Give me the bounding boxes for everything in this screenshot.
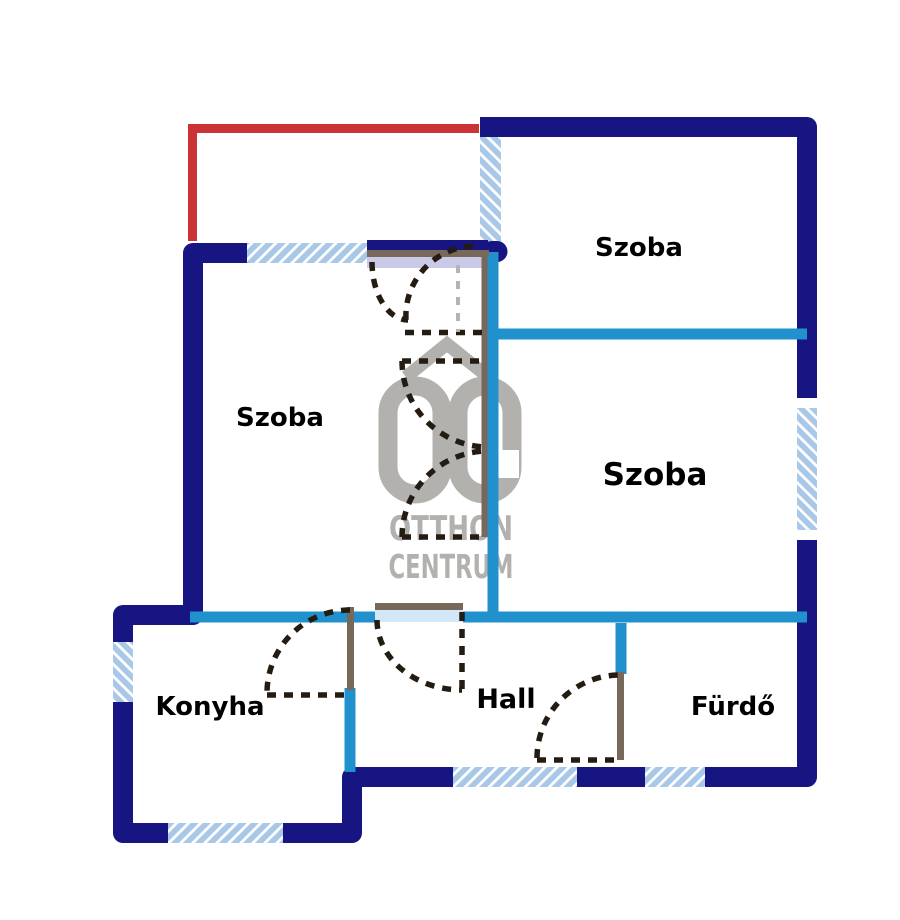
door-hall-arc [377,620,462,690]
door-hall-opening-fill [375,610,463,622]
window-konyha-left [113,642,133,702]
wall-bottom-step [283,777,453,833]
logo-roof-notch [432,366,462,378]
room-label-szoba-right: Szoba [603,457,708,493]
room-label-szoba-top: Szoba [595,233,683,263]
logo-c-gap [499,450,519,478]
balcony-outline [193,129,480,242]
wall-left [123,253,247,642]
window-szoba-left-top [247,243,367,263]
door-top-arc-left [372,262,408,320]
window-konyha-bottom [168,823,283,843]
room-label-konyha: Konyha [155,692,264,722]
window-furdo-bottom [645,767,705,787]
window-szoba-right [797,408,817,530]
door-furdo-arc [537,675,620,758]
logo-monogram-O [388,386,442,494]
wall-right-bottom [705,540,807,777]
window-hall-bottom [453,767,577,787]
room-label-furdo: Fürdő [691,692,775,722]
door-swings [267,246,620,760]
room-label-szoba-left: Szoba [236,403,324,433]
floor-plan: OTTHON CENTRUM [0,0,900,920]
watermark-logo: OTTHON CENTRUM [388,344,519,586]
floor-plan-canvas: OTTHON CENTRUM [0,0,900,920]
window-balcony-side [480,126,501,244]
room-label-hall: Hall [476,684,535,715]
